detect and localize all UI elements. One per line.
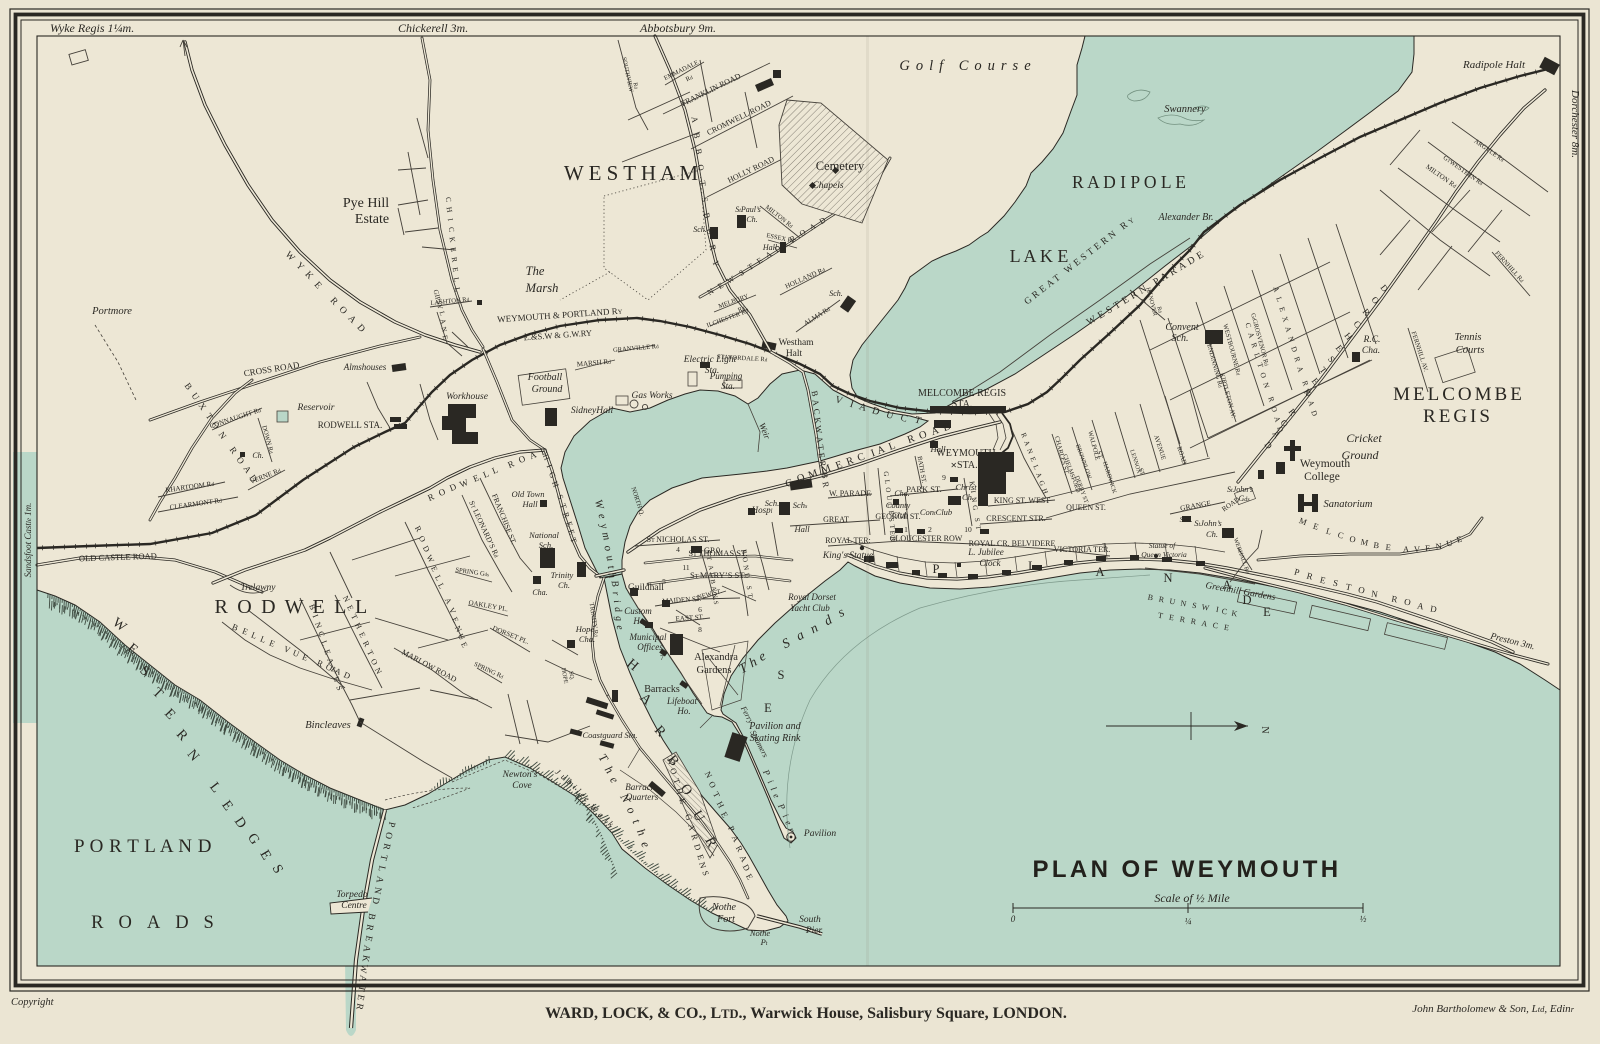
svg-text:Sch.: Sch.: [1180, 515, 1193, 524]
svg-text:11: 11: [682, 563, 689, 572]
svg-text:Golf Course: Golf Course: [899, 58, 1036, 74]
svg-text:Sch.: Sch.: [539, 540, 553, 550]
svg-text:Pier: Pier: [805, 926, 823, 936]
svg-text:Quarters: Quarters: [626, 792, 659, 802]
svg-text:South: South: [799, 915, 821, 925]
svg-text:John Bartholomew & Son, Ltd, E: John Bartholomew & Son, Ltd, Edinr: [1412, 1003, 1575, 1015]
svg-text:Barrack: Barrack: [625, 782, 655, 792]
svg-text:Hall: Hall: [929, 444, 946, 454]
svg-text:N: N: [1163, 571, 1172, 585]
svg-text:½: ½: [1360, 914, 1367, 924]
svg-text:L: L: [1028, 559, 1036, 573]
svg-text:Cha.: Cha.: [1362, 346, 1380, 356]
svg-text:Almshouses: Almshouses: [343, 362, 387, 372]
svg-text:E: E: [1425, 543, 1431, 553]
svg-text:Ch.: Ch.: [252, 451, 263, 460]
svg-text:W. PARADE: W. PARADE: [829, 489, 871, 498]
svg-text:Sta.: Sta.: [721, 381, 735, 391]
svg-text:Alexandra: Alexandra: [694, 652, 738, 663]
svg-text:0: 0: [1011, 914, 1016, 924]
svg-text:W E S T H A M: W E S T H A M: [564, 161, 699, 185]
svg-text:KING ST. WEST: KING ST. WEST: [994, 496, 1050, 505]
svg-text:Dorchester 8m.: Dorchester 8m.: [1569, 89, 1581, 158]
svg-text:Queen Victoria: Queen Victoria: [1141, 550, 1187, 559]
svg-text:Weymouth: Weymouth: [1300, 458, 1350, 470]
svg-text:Statue of: Statue of: [1149, 541, 1176, 550]
svg-text:ContClub: ContClub: [920, 507, 952, 517]
svg-text:A: A: [1095, 565, 1104, 579]
svg-text:Ho.: Ho.: [676, 706, 690, 716]
svg-text:Estate: Estate: [355, 212, 389, 227]
svg-text:Centre: Centre: [341, 901, 367, 911]
svg-text:GREAT: GREAT: [823, 515, 849, 524]
svg-text:Convent: Convent: [1165, 322, 1199, 333]
svg-text:Newton's: Newton's: [502, 770, 538, 780]
svg-text:Trelawny: Trelawny: [240, 583, 276, 593]
svg-text:StJohn’s: StJohn’s: [1227, 485, 1253, 494]
svg-text:O: O: [884, 487, 892, 493]
svg-text:Halt: Halt: [786, 349, 803, 359]
svg-text:Ground: Ground: [532, 384, 564, 395]
svg-text:Lifeboat: Lifeboat: [666, 696, 698, 706]
svg-text:Ch.: Ch.: [746, 215, 757, 224]
svg-text:8: 8: [698, 625, 702, 634]
svg-text:Swannery: Swannery: [1164, 104, 1206, 115]
svg-text:Pye Hill: Pye Hill: [343, 196, 389, 211]
svg-text:Football: Football: [527, 372, 563, 383]
svg-text:L. Jubilee: L. Jubilee: [967, 547, 1004, 557]
svg-text:Abbotsbury 9m.: Abbotsbury 9m.: [639, 21, 716, 35]
svg-text:Cemetery: Cemetery: [816, 159, 865, 173]
svg-text:Ho.: Ho.: [632, 616, 646, 626]
svg-text:StJohn’s: StJohn’s: [1194, 518, 1222, 528]
svg-text:Workhouse: Workhouse: [446, 392, 488, 402]
svg-text:Club: Club: [892, 510, 909, 520]
svg-text:Sch.: Sch.: [829, 289, 843, 298]
svg-text:E: E: [1385, 542, 1391, 552]
svg-text:Chapels: Chapels: [812, 181, 843, 191]
svg-text:Torpedo: Torpedo: [336, 890, 368, 900]
svg-text:Ch.: Ch.: [962, 492, 974, 502]
svg-text:Yacht Club: Yacht Club: [790, 603, 830, 613]
svg-text:Fort: Fort: [716, 914, 735, 925]
svg-text:Wyke Regis 1¼m.: Wyke Regis 1¼m.: [50, 21, 134, 35]
svg-text:Copyright: Copyright: [11, 997, 55, 1008]
svg-text:6: 6: [698, 605, 702, 614]
svg-text:1: 1: [904, 525, 908, 534]
svg-text:Clock: Clock: [980, 558, 1002, 568]
svg-text:Courts: Courts: [1456, 345, 1485, 356]
svg-text:Hospl: Hospl: [751, 505, 773, 515]
svg-text:G: G: [882, 471, 890, 477]
svg-text:Trinity: Trinity: [551, 570, 574, 580]
svg-text:National: National: [528, 530, 559, 540]
svg-text:Sandsfoot Castle 1m.: Sandsfoot Castle 1m.: [23, 503, 33, 578]
svg-text:Hall: Hall: [521, 499, 538, 509]
svg-text:ROYAL CR. BELVIDERE: ROYAL CR. BELVIDERE: [969, 539, 1056, 548]
svg-text:V: V: [1414, 544, 1421, 554]
svg-text:The: The: [526, 264, 545, 278]
svg-text:Cha.: Cha.: [579, 634, 595, 644]
svg-text:Bincleaves: Bincleaves: [305, 720, 350, 731]
svg-text:Scale of ½ Mile: Scale of ½ Mile: [1154, 891, 1230, 905]
svg-text:Hope: Hope: [575, 624, 595, 634]
svg-text:E: E: [1263, 605, 1271, 619]
svg-text:Nothe: Nothe: [711, 902, 736, 913]
svg-text:3: 3: [1102, 541, 1106, 550]
svg-text:StPaul’s: StPaul’s: [735, 205, 761, 214]
svg-text:9: 9: [942, 473, 946, 482]
svg-text:Chickerell 3m.: Chickerell 3m.: [398, 21, 468, 35]
svg-text:PLAN OF WEYMOUTH: PLAN OF WEYMOUTH: [1032, 856, 1341, 883]
svg-text:2: 2: [928, 525, 932, 534]
svg-text:QUEEN ST.: QUEEN ST.: [1066, 503, 1106, 512]
svg-text:Sch.: Sch.: [1172, 333, 1189, 344]
svg-text:N: N: [1259, 726, 1270, 733]
svg-text:Offices: Offices: [637, 642, 663, 652]
svg-text:Coastguard Sta.: Coastguard Sta.: [583, 730, 638, 740]
svg-text:Tennis: Tennis: [1454, 332, 1481, 343]
svg-text:Cha.: Cha.: [894, 489, 909, 498]
svg-text:4: 4: [676, 545, 680, 554]
svg-text:REGIS: REGIS: [1423, 406, 1493, 427]
svg-text:¼: ¼: [1185, 916, 1192, 926]
svg-text:✕STA.: ✕STA.: [950, 460, 977, 471]
svg-text:Reservoir: Reservoir: [297, 403, 335, 413]
svg-text:MELCOMBE: MELCOMBE: [1393, 384, 1525, 405]
svg-text:E: E: [764, 701, 772, 715]
svg-text:Gardens: Gardens: [697, 665, 732, 676]
svg-text:Cha.: Cha.: [532, 588, 547, 597]
svg-text:SidneyHall: SidneyHall: [571, 406, 614, 416]
svg-text:MELCOMBE REGIS: MELCOMBE REGIS: [918, 388, 1006, 399]
svg-text:Pavilion: Pavilion: [803, 829, 836, 839]
svg-text:Marsh: Marsh: [525, 281, 559, 295]
svg-text:ST NICHOLAS ST.: ST NICHOLAS ST.: [647, 535, 710, 544]
svg-text:Custom: Custom: [624, 606, 652, 616]
svg-text:P: P: [933, 562, 940, 576]
svg-text:R A D I P O L E: R A D I P O L E: [1072, 172, 1186, 192]
svg-text:Cove: Cove: [512, 781, 532, 791]
svg-text:Westham: Westham: [778, 338, 814, 348]
svg-text:Hall: Hall: [762, 243, 778, 252]
svg-text:PARK ST.: PARK ST.: [906, 484, 941, 494]
svg-text:WARD, LOCK, & CO., LTD., Warwi: WARD, LOCK, & CO., LTD., Warwick House, …: [545, 1005, 1067, 1022]
svg-text:Barracks: Barracks: [644, 684, 680, 695]
svg-text:STA.: STA.: [952, 399, 973, 410]
svg-text:R.C.: R.C.: [1363, 335, 1381, 345]
svg-text:Ch.: Ch.: [1206, 529, 1218, 539]
svg-text:Portmore: Portmore: [91, 306, 132, 317]
svg-text:Alexander Br.: Alexander Br.: [1158, 212, 1214, 223]
svg-text:W: W: [813, 425, 824, 435]
svg-text:Cricket: Cricket: [1346, 431, 1382, 445]
svg-text:L A K E: L A K E: [1010, 246, 1069, 266]
svg-text:S: S: [778, 668, 785, 682]
svg-text:Hall: Hall: [793, 524, 810, 534]
svg-text:L: L: [883, 479, 891, 484]
svg-text:10: 10: [964, 525, 972, 534]
svg-text:Municipal: Municipal: [629, 632, 667, 642]
svg-text:P O R T L A N D: P O R T L A N D: [74, 836, 212, 857]
svg-text:7: 7: [660, 653, 664, 662]
svg-text:CRESCENT STR.: CRESCENT STR.: [986, 514, 1045, 523]
svg-text:ROADS: ROADS: [91, 913, 229, 933]
svg-text:Royal Dorset: Royal Dorset: [787, 592, 836, 602]
svg-text:RODWELL STA.: RODWELL STA.: [318, 420, 382, 430]
svg-text:Guildhall: Guildhall: [628, 583, 664, 593]
svg-text:Sanatorium: Sanatorium: [1323, 499, 1372, 510]
svg-text:College: College: [1304, 471, 1340, 483]
svg-text:Gas Works: Gas Works: [631, 391, 672, 401]
svg-text:Pumping: Pumping: [709, 371, 743, 381]
svg-text:E: E: [888, 530, 896, 535]
svg-text:ROYAL TER:: ROYAL TER:: [825, 536, 871, 545]
svg-text:County: County: [886, 500, 911, 510]
svg-text:King's Statue: King's Statue: [822, 551, 873, 561]
svg-text:Christ: Christ: [955, 482, 977, 492]
svg-text:Radipole Halt: Radipole Halt: [1462, 59, 1526, 71]
svg-text:Old Town: Old Town: [512, 489, 545, 499]
svg-text:Ch.: Ch.: [558, 580, 570, 590]
svg-text:GLOUCESTER ROW: GLOUCESTER ROW: [890, 534, 963, 543]
svg-text:5: 5: [662, 577, 666, 586]
svg-text:Sch.: Sch.: [693, 225, 707, 234]
